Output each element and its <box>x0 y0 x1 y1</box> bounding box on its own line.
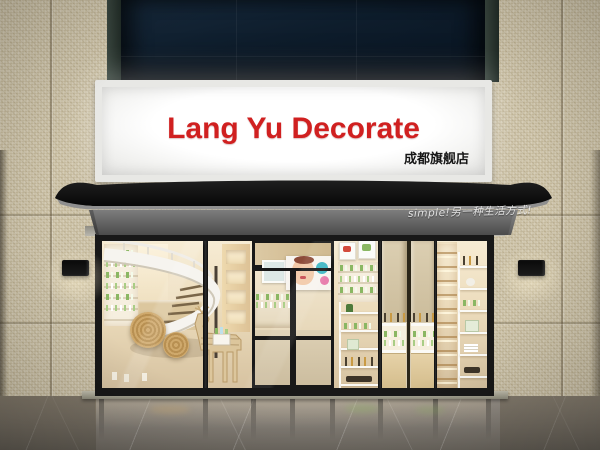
wall-edge-shadow <box>0 150 8 400</box>
floor-wall-reflection-right <box>500 396 600 450</box>
floor-reflection-bar <box>378 396 383 440</box>
floor-green-smudge <box>415 406 445 414</box>
panel-seam <box>236 0 237 82</box>
sconce-glow <box>39 246 113 308</box>
storefront-frame-right <box>487 234 494 396</box>
floor-reflection-bar <box>330 396 335 440</box>
glass-reflection <box>102 240 487 391</box>
sconce-glow <box>495 246 569 308</box>
panel-seam <box>356 0 357 82</box>
floor-reflection-bar <box>99 396 104 440</box>
floor-wall-reflection-left <box>0 396 96 450</box>
floor-reflection-bar <box>486 396 491 440</box>
wall-sconce-left <box>62 260 89 276</box>
sign-lightbox: Lang Yu Decorate 成都旗舰店 <box>95 80 492 182</box>
sign-face: Lang Yu Decorate 成都旗舰店 <box>102 87 485 175</box>
floor-green-smudge <box>345 404 379 413</box>
header-pilaster-left <box>107 0 122 82</box>
wall-seam <box>50 0 52 398</box>
header-navy-panel <box>121 0 485 82</box>
sign-title: Lang Yu Decorate <box>167 112 420 146</box>
floor-reflection-bar <box>251 396 256 440</box>
wall-sconce-right <box>518 260 545 276</box>
sign-subtitle: 成都旗舰店 <box>404 148 469 167</box>
floor-reflection-bar <box>433 396 438 440</box>
wall-seam <box>492 322 600 324</box>
floor-wood-smudge <box>150 405 190 414</box>
storefront-frame-bottom <box>95 388 494 396</box>
storefront-photo: Lang Yu Decorate 成都旗舰店 simple!另一种生活方式! <box>0 0 600 450</box>
marble-floor <box>0 396 600 450</box>
header-pilaster-right <box>484 0 499 82</box>
panel-seam <box>121 56 485 57</box>
floor-reflection-bar <box>290 396 295 440</box>
wall-seam <box>561 0 563 398</box>
wall-seam <box>0 322 96 324</box>
floor-reflection-bar <box>203 396 208 440</box>
wall-edge-shadow <box>590 150 600 400</box>
